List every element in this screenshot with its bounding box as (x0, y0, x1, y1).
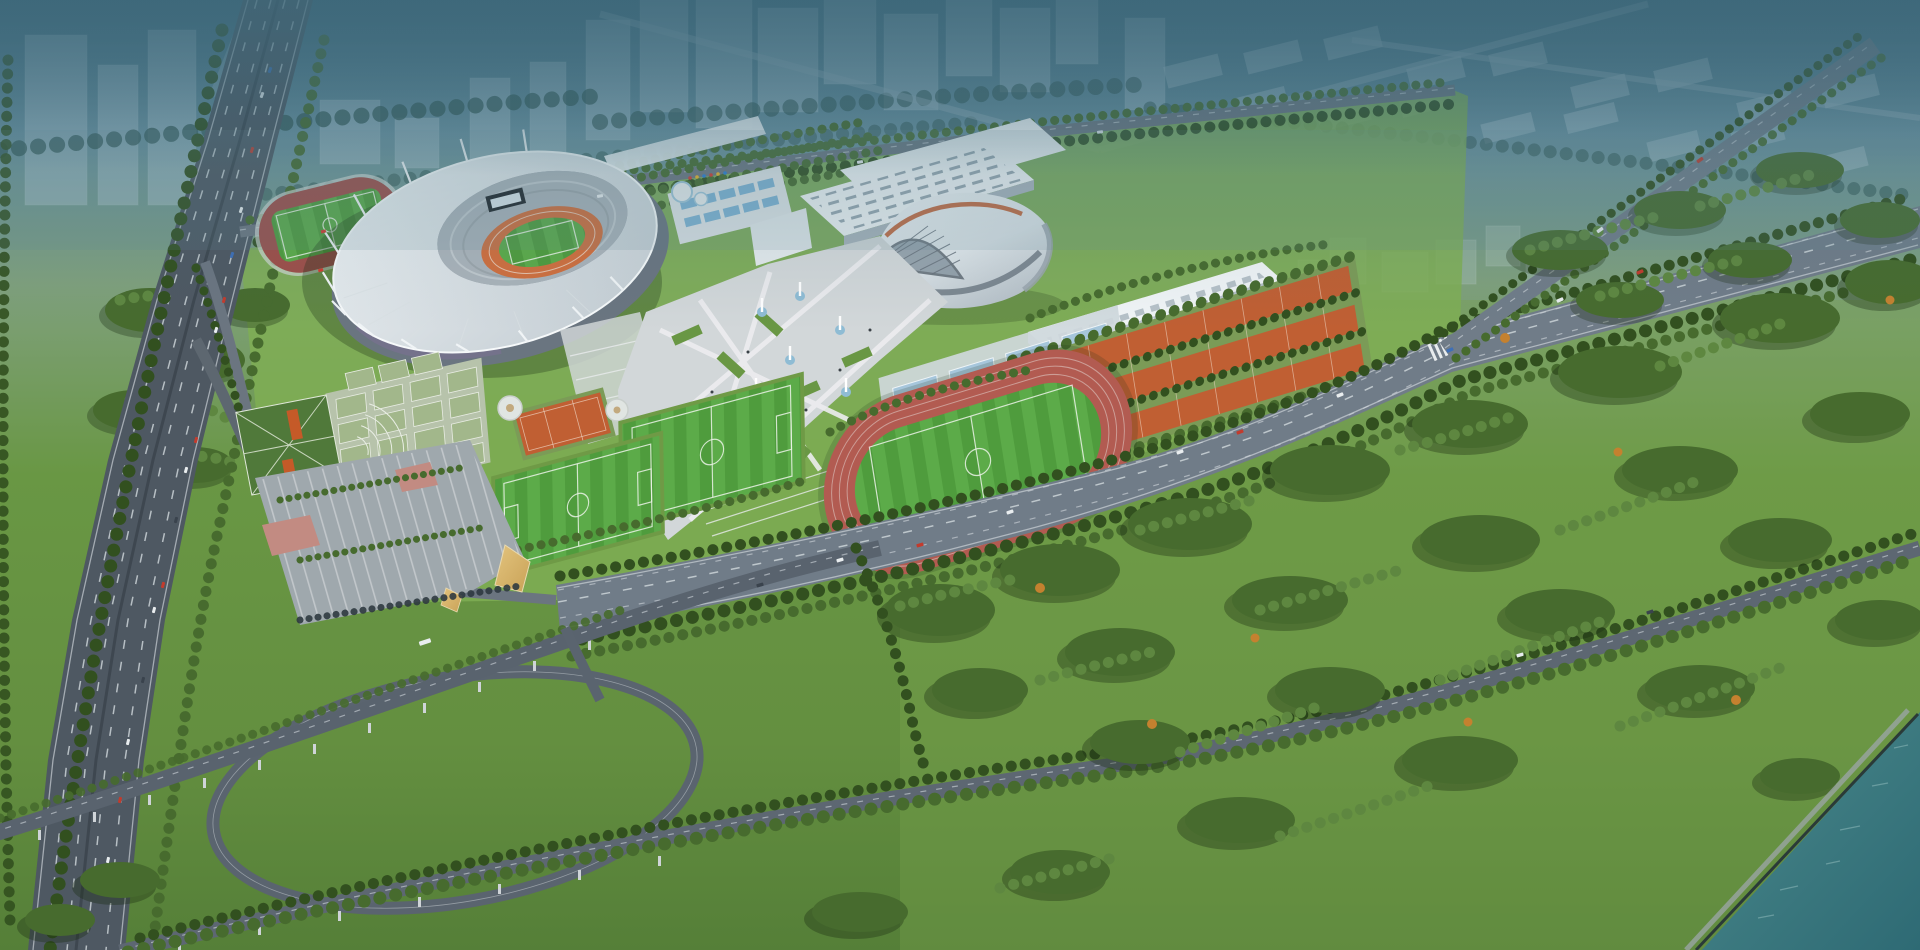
aerial-rendering-stage (0, 0, 1920, 950)
sports-complex-rendering (0, 0, 1920, 950)
fog-band (0, 130, 1920, 250)
